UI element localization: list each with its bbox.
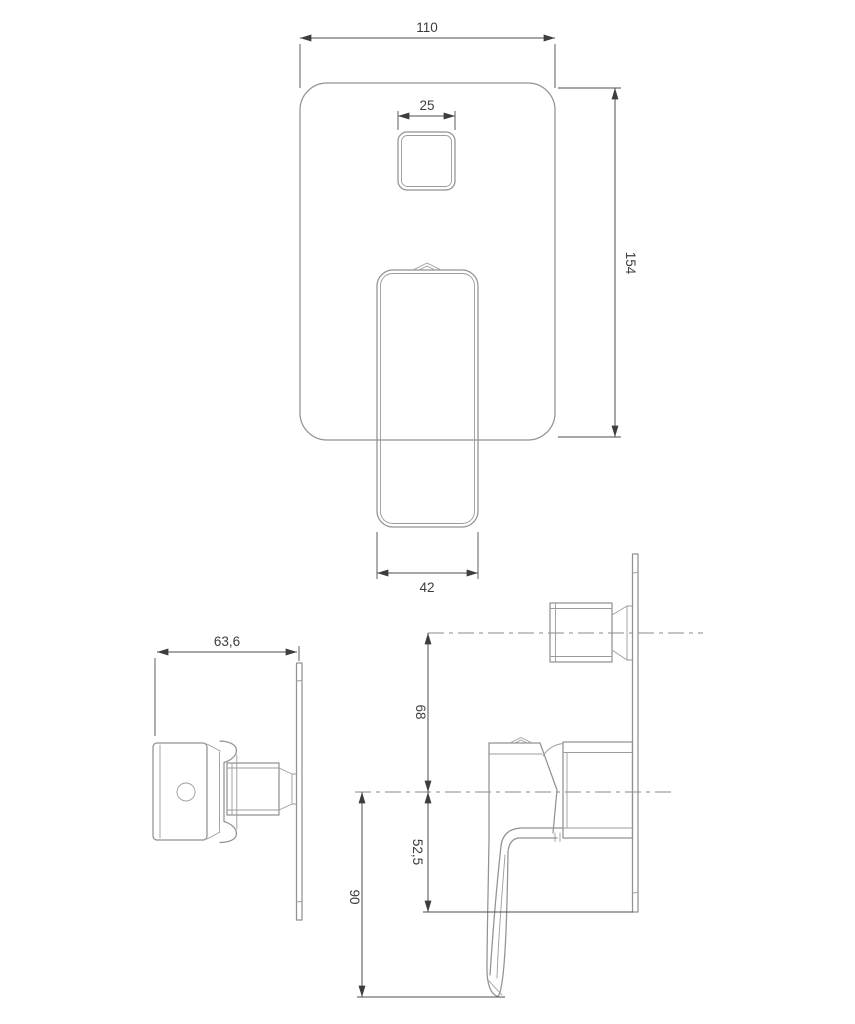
diverter-button-outer bbox=[398, 132, 455, 190]
valve-body-facets bbox=[563, 753, 633, 829]
dim-plate-height-extlines bbox=[558, 88, 621, 437]
dim-depth-label: 63,6 bbox=[214, 634, 240, 649]
lever-handle-outline bbox=[377, 270, 478, 527]
wall-plate-edge bbox=[297, 663, 303, 920]
wall-plate-corner-ticks bbox=[297, 681, 303, 903]
technical-drawing-canvas: 110 25 154 42 63,6 bbox=[0, 0, 855, 1024]
valve-body-side bbox=[563, 742, 633, 838]
diverter-button-inner bbox=[402, 136, 452, 187]
wall-plate-corner-ticks-side bbox=[633, 573, 639, 894]
wall-plate-outline bbox=[300, 83, 555, 440]
dim-plate-width-extlines bbox=[300, 44, 555, 88]
handle-body-fillet bbox=[543, 744, 563, 757]
top-view: 63,6 bbox=[153, 634, 302, 920]
dim-depth-extlines bbox=[155, 646, 299, 736]
handle-back-slant bbox=[540, 743, 557, 833]
handle-top-outline bbox=[153, 743, 207, 840]
body-lever-joint bbox=[555, 833, 560, 842]
lever-handle-inner bbox=[381, 274, 475, 524]
side-view: 68 52,5 90 bbox=[347, 554, 703, 997]
dim-handle-width-label: 42 bbox=[419, 580, 434, 595]
handle-set-screw-hole bbox=[177, 783, 195, 801]
cartridge-body-facets bbox=[227, 763, 279, 815]
escutcheon-collar bbox=[220, 741, 236, 843]
drawing-svg: 110 25 154 42 63,6 bbox=[0, 0, 855, 1024]
front-view: 110 25 154 42 bbox=[300, 20, 638, 595]
dim-handle-drop-label: 90 bbox=[347, 889, 362, 904]
lever-arm-inner-edge bbox=[490, 828, 563, 975]
dim-button-width-extlines bbox=[398, 111, 455, 130]
body-flange bbox=[279, 768, 297, 810]
dim-plate-width-label: 110 bbox=[416, 20, 438, 35]
dim-axis-offset-label: 68 bbox=[413, 704, 428, 719]
dim-plate-offset-label: 52,5 bbox=[410, 839, 425, 865]
cartridge-body bbox=[227, 763, 279, 815]
handle-indicator-mark-side bbox=[510, 738, 532, 744]
dim-button-width-label: 25 bbox=[419, 98, 434, 113]
dim-plate-height-label: 154 bbox=[623, 252, 638, 275]
handle-back-chamfer bbox=[207, 744, 220, 839]
dim-handle-width-extlines bbox=[377, 532, 478, 579]
wall-plate-edge-side bbox=[633, 554, 639, 912]
